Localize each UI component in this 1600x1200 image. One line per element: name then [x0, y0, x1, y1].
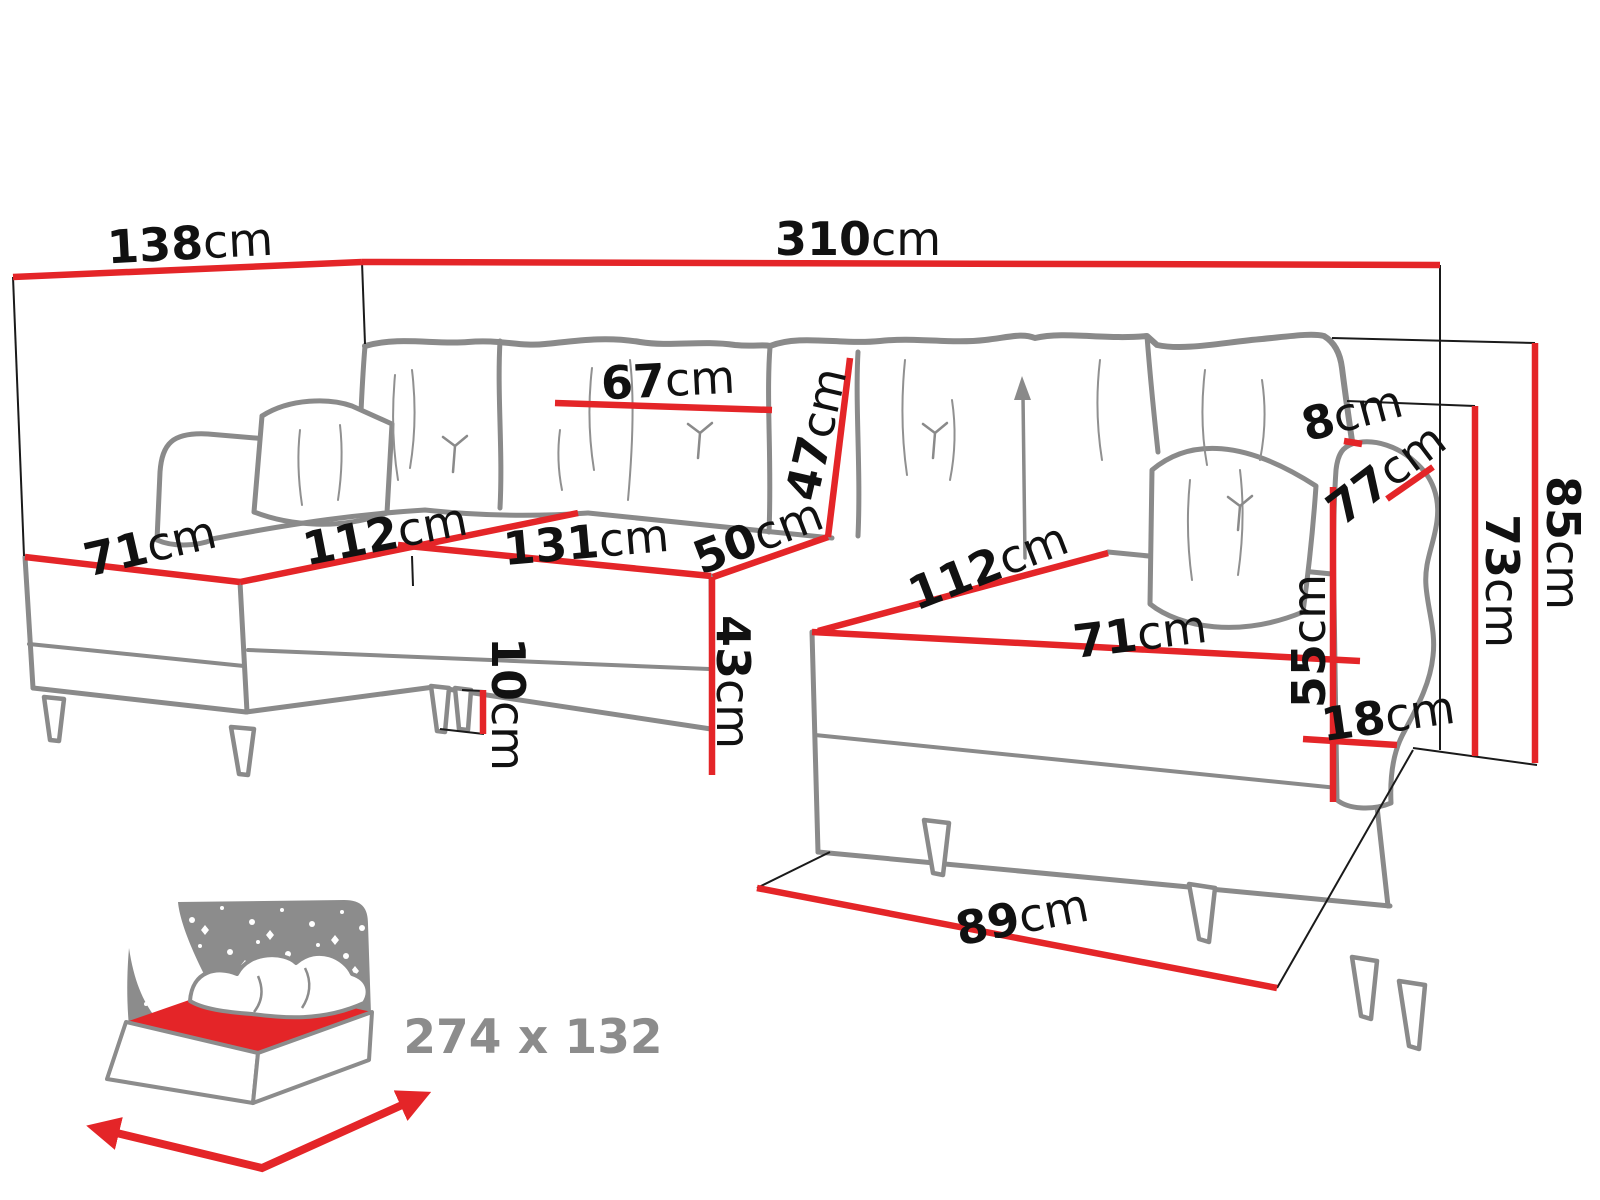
chaise-front-edge — [240, 582, 247, 712]
dimension-label-d67: 67cm — [600, 350, 737, 411]
pillow-separator — [857, 352, 859, 536]
projection-line-t-left-wall — [13, 277, 24, 556]
leg — [44, 697, 64, 741]
pillow-arrow-head — [1014, 376, 1031, 400]
pillow-separator — [499, 341, 501, 508]
dimension-label-d131: 131cm — [501, 508, 671, 576]
leg — [231, 727, 254, 775]
dimension-label-d310: 310cm — [775, 212, 941, 266]
bed-size-arrows — [96, 1096, 422, 1168]
leg — [1399, 981, 1425, 1049]
projection-line-t-corner-edge — [412, 556, 413, 586]
dimension-label-d138: 138cm — [106, 212, 275, 275]
leg — [924, 820, 949, 875]
rchaise-left-edge — [812, 632, 818, 852]
dimension-label-d73: 73cm — [1475, 514, 1529, 648]
dimension-label-d112-right: 112cm — [901, 511, 1075, 621]
dimension-label-d85: 85cm — [1536, 476, 1590, 610]
small-pillow — [254, 401, 392, 524]
dimension-label-d89: 89cm — [951, 878, 1093, 957]
diagram-canvas: 274 x 132 138cm310cm67cm47cm8cm77cm85cm7… — [0, 0, 1600, 1200]
sleeping-function-icon: 274 x 132 — [96, 900, 663, 1168]
chaise-left-edge — [25, 557, 33, 688]
dimension-label-d43: 43cm — [706, 615, 760, 749]
dimension-label-d71-right: 71cm — [1070, 599, 1210, 669]
leg — [1352, 957, 1377, 1019]
chaise-seam — [29, 644, 244, 666]
dimension-label-d50: 50cm — [686, 487, 831, 585]
sofa-dimension-diagram: 274 x 132 138cm310cm67cm47cm8cm77cm85cm7… — [0, 0, 1600, 1200]
leg — [455, 688, 471, 730]
sleep-size-label: 274 x 132 — [403, 1010, 662, 1065]
dimension-label-d47: 47cm — [775, 363, 858, 506]
leg — [1189, 884, 1215, 942]
projection-line-t-floor-left — [757, 852, 830, 888]
dimension-label-d55: 55cm — [1282, 574, 1336, 708]
main-seam — [248, 650, 709, 669]
leg — [431, 686, 449, 732]
rchaise-bottom-edge — [818, 852, 1390, 906]
backrest-corner-edge — [1147, 336, 1158, 452]
projection-line-t-split — [362, 262, 365, 344]
dimension-label-d10: 10cm — [481, 637, 535, 771]
main-bottom-edge — [246, 687, 711, 729]
rchaise-seam — [815, 735, 1377, 792]
backrest-left-edge — [361, 346, 365, 412]
projection-line-t-85-top — [1332, 338, 1535, 343]
